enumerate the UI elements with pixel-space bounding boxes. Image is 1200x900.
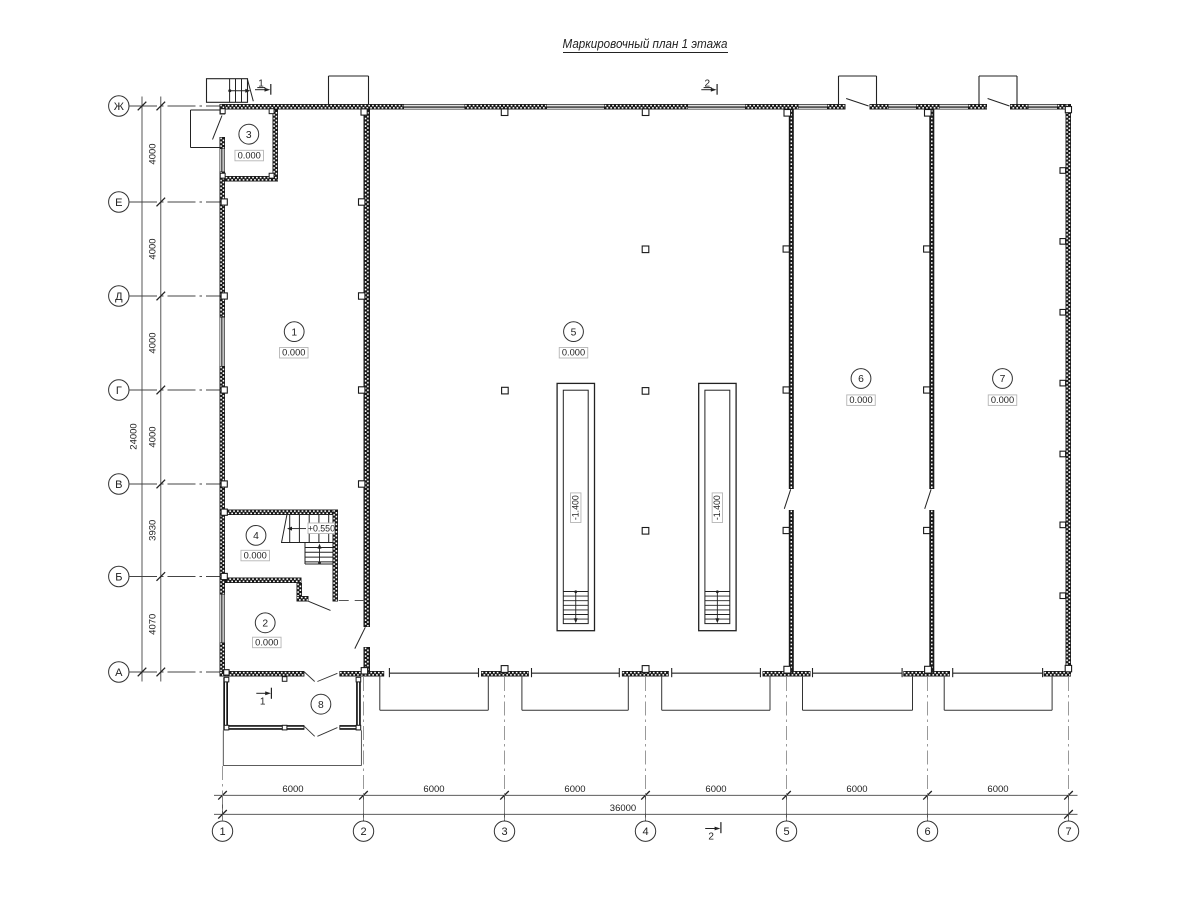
svg-text:В: В: [115, 479, 122, 491]
svg-text:6000: 6000: [564, 784, 585, 795]
svg-text:5: 5: [571, 327, 577, 338]
svg-text:4000: 4000: [147, 143, 158, 164]
svg-text:А: А: [115, 667, 123, 679]
svg-text:Б: Б: [115, 571, 122, 583]
svg-text:Е: Е: [115, 197, 122, 209]
svg-text:3: 3: [501, 826, 507, 838]
svg-text:4: 4: [253, 531, 259, 542]
svg-text:6000: 6000: [705, 784, 726, 795]
svg-text:2: 2: [262, 619, 268, 630]
svg-text:4070: 4070: [147, 614, 158, 635]
svg-text:1: 1: [219, 826, 225, 838]
svg-text:36000: 36000: [610, 803, 636, 814]
svg-text:-1.400: -1.400: [571, 495, 581, 520]
svg-text:0.000: 0.000: [238, 150, 261, 160]
svg-text:0.000: 0.000: [282, 348, 305, 358]
svg-text:5: 5: [783, 826, 789, 838]
svg-text:7: 7: [1065, 826, 1071, 838]
svg-text:0.000: 0.000: [562, 348, 585, 358]
svg-text:7: 7: [1000, 374, 1006, 385]
svg-text:0.000: 0.000: [991, 395, 1014, 405]
svg-text:6: 6: [858, 374, 864, 385]
svg-text:0.000: 0.000: [849, 395, 872, 405]
svg-text:Маркировочный план 1 этажа: Маркировочный план 1 этажа: [563, 36, 728, 51]
svg-text:-1.400: -1.400: [712, 495, 722, 520]
svg-text:0.000: 0.000: [255, 637, 278, 647]
svg-text:3930: 3930: [147, 520, 158, 541]
svg-text:6: 6: [924, 826, 930, 838]
svg-text:1: 1: [260, 697, 266, 708]
svg-text:4: 4: [642, 826, 648, 838]
svg-text:6000: 6000: [423, 784, 444, 795]
svg-text:6000: 6000: [846, 784, 867, 795]
svg-text:8: 8: [318, 700, 324, 711]
svg-text:2: 2: [708, 832, 714, 843]
svg-text:6000: 6000: [282, 784, 303, 795]
svg-text:3: 3: [246, 130, 252, 141]
svg-text:4000: 4000: [147, 426, 158, 447]
svg-text:24000: 24000: [128, 423, 139, 449]
svg-text:Д: Д: [115, 291, 123, 303]
svg-text:Г: Г: [116, 385, 122, 397]
svg-text:4000: 4000: [147, 332, 158, 353]
svg-text:1: 1: [291, 327, 297, 338]
svg-text:0.000: 0.000: [244, 550, 267, 560]
svg-text:+0.550: +0.550: [308, 523, 335, 533]
svg-text:4000: 4000: [147, 238, 158, 259]
svg-text:Ж: Ж: [114, 101, 124, 113]
svg-text:6000: 6000: [987, 784, 1008, 795]
svg-text:2: 2: [360, 826, 366, 838]
